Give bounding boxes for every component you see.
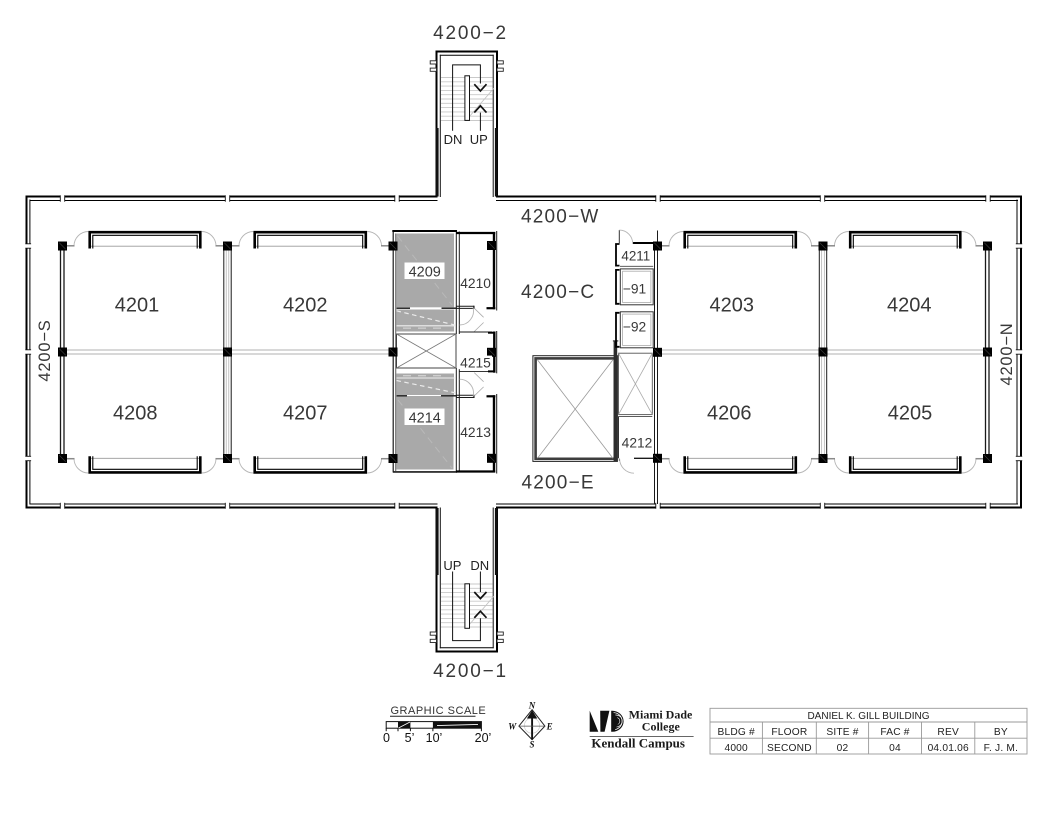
svg-text:4208: 4208 (113, 403, 158, 425)
svg-text:4200−E: 4200−E (522, 473, 595, 494)
svg-text:−92: −92 (623, 320, 646, 335)
svg-text:4215: 4215 (460, 356, 491, 371)
svg-text:BLDG #: BLDG # (717, 727, 755, 738)
svg-text:UP: UP (470, 132, 488, 147)
svg-text:4204: 4204 (887, 294, 932, 316)
svg-text:4209: 4209 (409, 265, 441, 281)
svg-text:20’: 20’ (475, 731, 492, 745)
svg-text:DN: DN (444, 132, 463, 147)
svg-text:−91: −91 (623, 282, 646, 297)
svg-text:DN: DN (470, 558, 489, 573)
svg-text:4201: 4201 (115, 294, 160, 316)
svg-text:10’: 10’ (426, 731, 443, 745)
svg-text:4200−C: 4200−C (521, 282, 595, 303)
svg-text:FAC #: FAC # (880, 727, 909, 738)
svg-text:5’: 5’ (405, 731, 415, 745)
svg-text:DANIEL K. GILL BUILDING: DANIEL K. GILL BUILDING (807, 711, 929, 722)
svg-text:4205: 4205 (888, 403, 933, 425)
svg-text:04: 04 (889, 743, 901, 754)
svg-text:4207: 4207 (283, 403, 328, 425)
svg-text:4202: 4202 (283, 294, 328, 316)
svg-text:S: S (529, 739, 534, 749)
svg-text:REV: REV (937, 727, 959, 738)
svg-text:College: College (642, 719, 681, 733)
svg-text:4212: 4212 (622, 436, 653, 451)
svg-text:BY: BY (994, 727, 1008, 738)
svg-text:0: 0 (383, 731, 390, 745)
svg-text:4211: 4211 (621, 249, 650, 264)
svg-text:4210: 4210 (460, 276, 491, 291)
svg-text:E: E (546, 721, 553, 731)
svg-text:4200−2: 4200−2 (433, 23, 508, 44)
svg-text:FLOOR: FLOOR (771, 727, 807, 738)
svg-text:UP: UP (443, 558, 461, 573)
svg-text:F. J. M.: F. J. M. (984, 743, 1018, 754)
svg-text:W: W (508, 721, 517, 731)
svg-text:4203: 4203 (710, 294, 755, 316)
svg-text:GRAPHIC SCALE: GRAPHIC SCALE (391, 705, 487, 717)
svg-text:4200−W: 4200−W (521, 207, 600, 228)
svg-text:4213: 4213 (460, 425, 491, 440)
svg-text:4206: 4206 (707, 403, 752, 425)
svg-text:Kendall Campus: Kendall Campus (591, 736, 685, 751)
svg-text:N: N (528, 701, 536, 711)
svg-text:4200−S: 4200−S (36, 319, 54, 381)
svg-text:4214: 4214 (409, 411, 441, 427)
svg-text:4000: 4000 (724, 743, 748, 754)
svg-text:4200−1: 4200−1 (433, 661, 508, 682)
svg-text:04.01.06: 04.01.06 (928, 743, 969, 754)
svg-text:4200−N: 4200−N (998, 322, 1016, 385)
svg-text:SITE #: SITE # (826, 727, 858, 738)
svg-text:02: 02 (837, 743, 849, 754)
svg-text:SECOND: SECOND (767, 743, 812, 754)
